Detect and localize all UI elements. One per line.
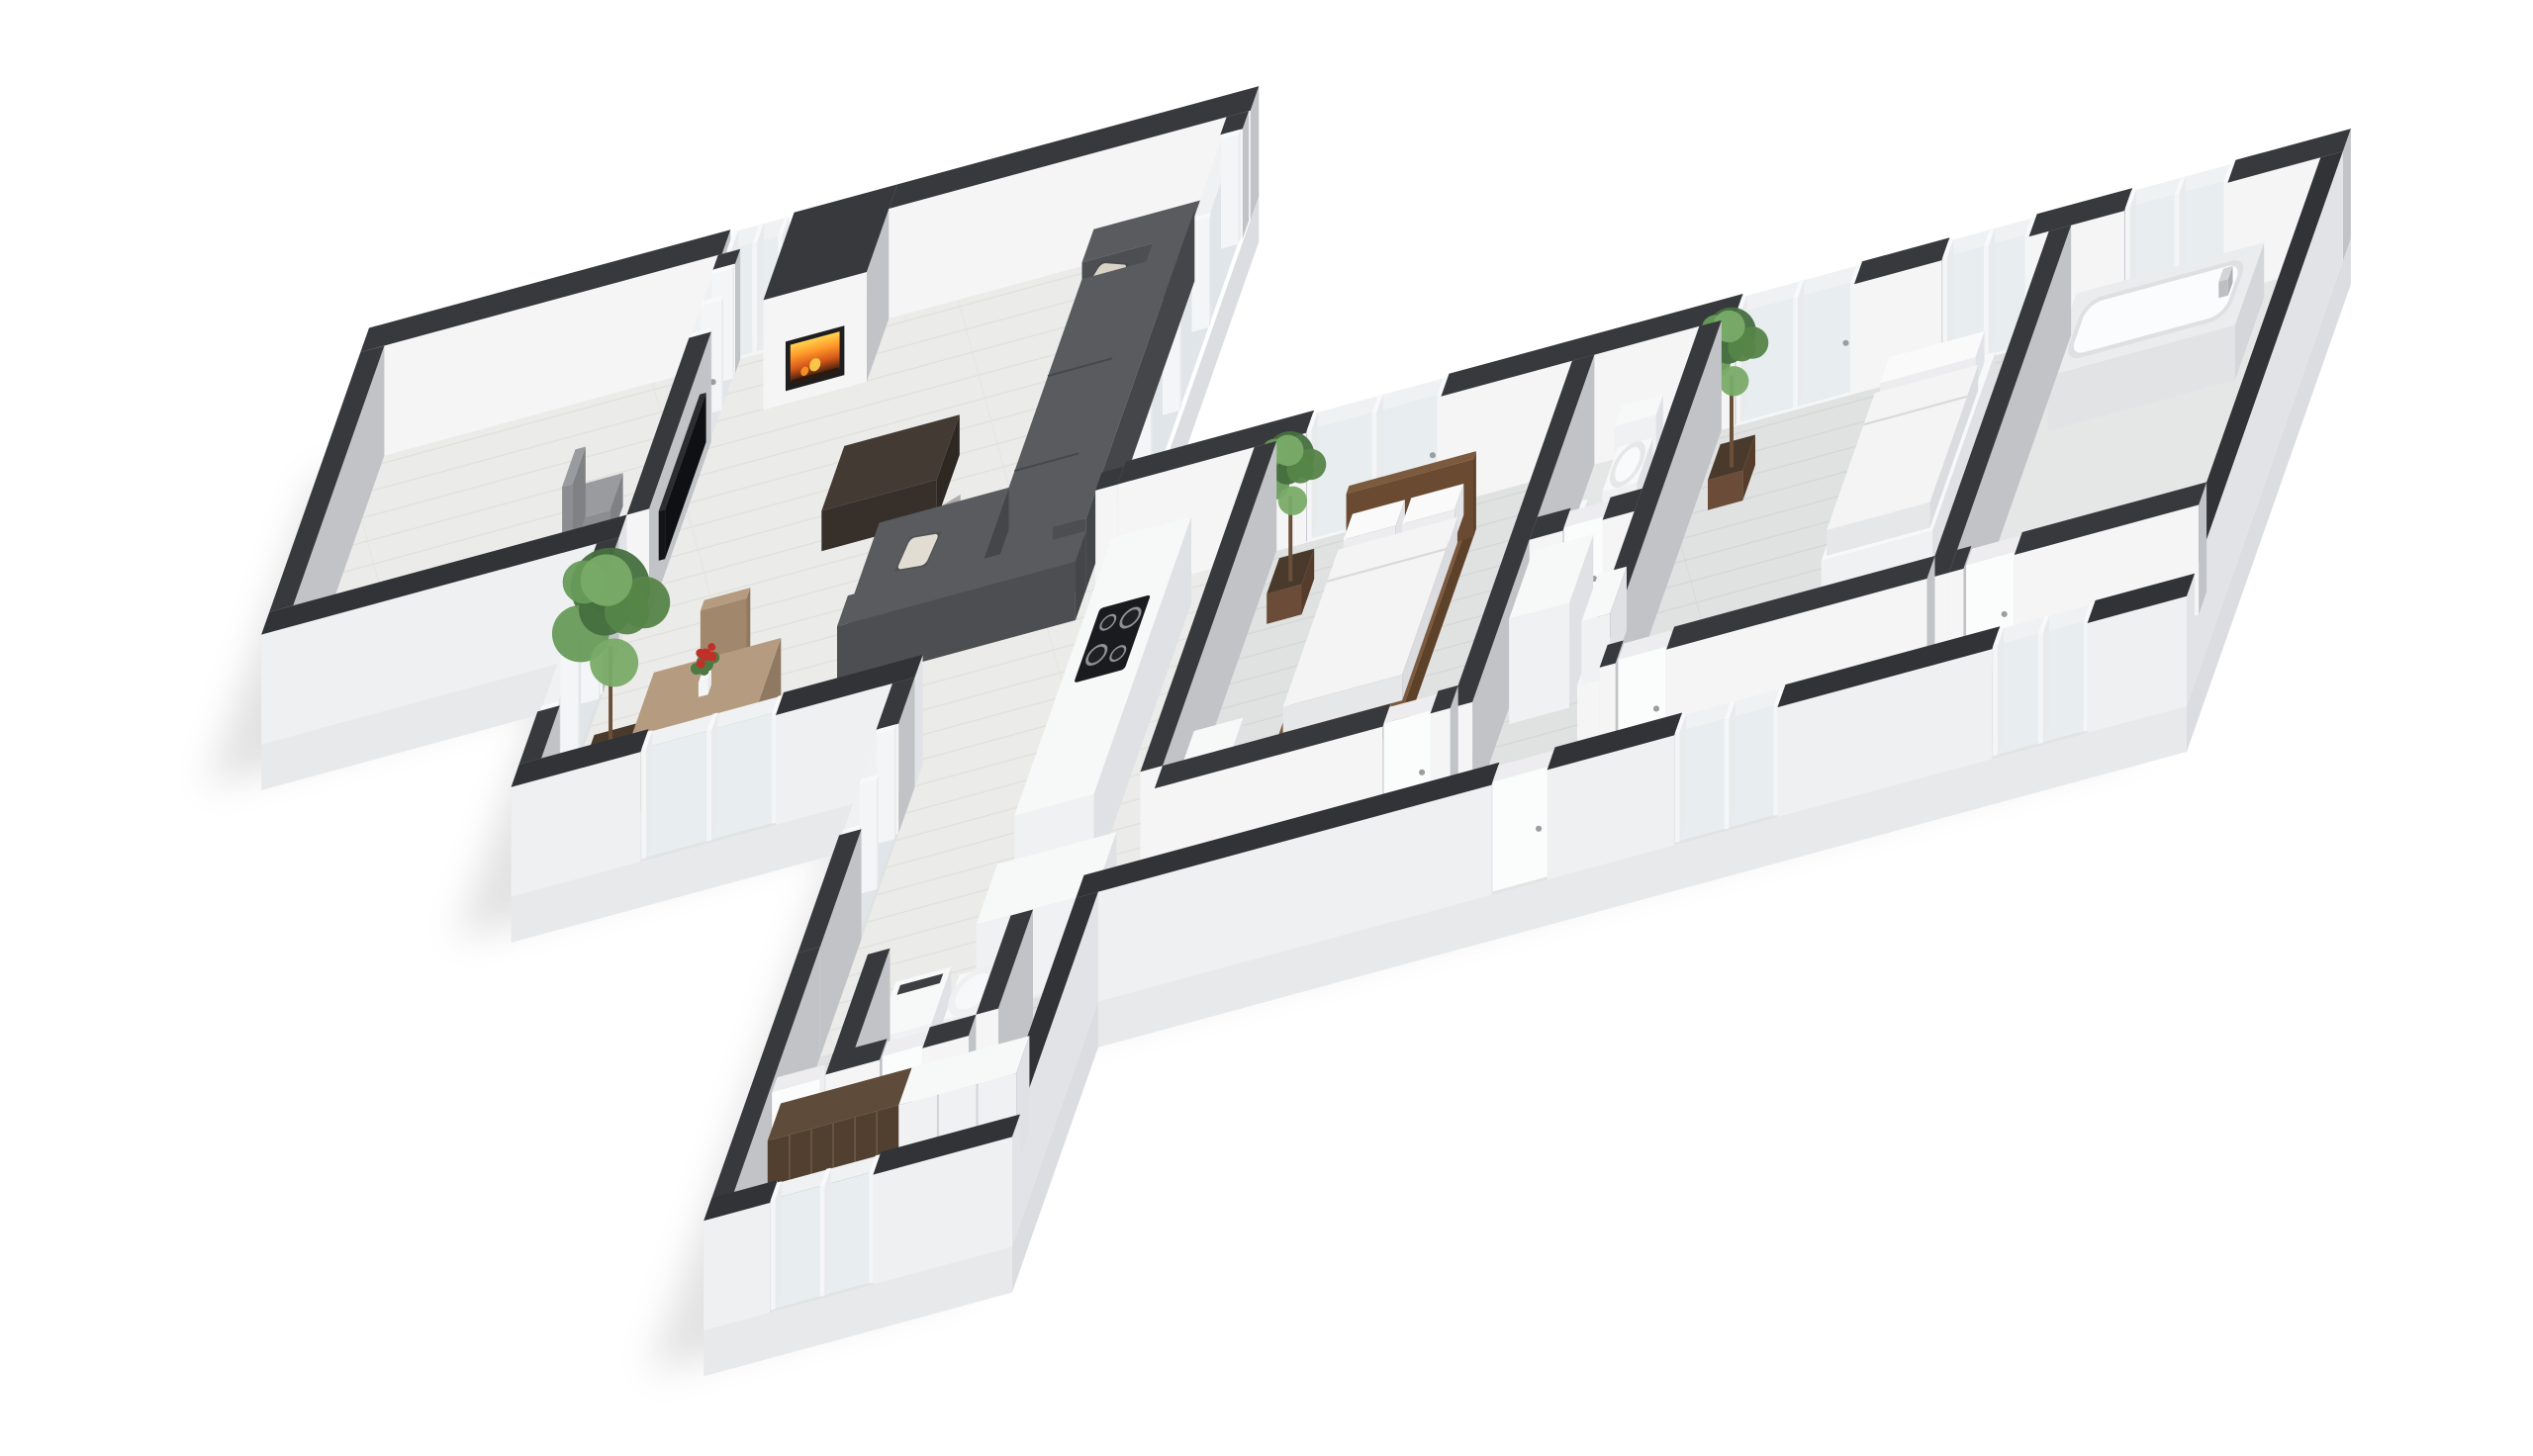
wall-south-block-b-east — [1012, 1115, 1020, 1247]
window-second-bedroom-north-post-east — [1989, 227, 1995, 355]
window-living-east-post-east — [1239, 130, 1241, 244]
window-second-bedroom-north-post-south — [1984, 245, 1989, 356]
floorplan-3d-render — [40, 16, 2533, 1440]
bed-master-headboard-east — [1473, 451, 1476, 537]
window-hall-south-b-post-east — [2043, 615, 2049, 743]
window-kitchen-west-post-south — [859, 779, 877, 894]
master-bedroom-plant-foliage — [1278, 487, 1307, 515]
window-kitchen-west-post-south — [877, 729, 894, 844]
window-south-bedroom-post-east — [824, 1168, 830, 1296]
window-living-south-post-south — [641, 748, 646, 859]
master-bedroom-plant-foliage — [1272, 435, 1303, 466]
window-south-bedroom-post-south — [771, 1199, 776, 1310]
wall-bath-south-b-east — [2199, 482, 2206, 614]
window-hall-south-b-post-south — [1993, 645, 1998, 756]
window-living-east-post-south — [1221, 135, 1239, 249]
wall-south-wing-d-east — [2187, 574, 2195, 706]
door-bathroom-handle-icon — [2002, 611, 2008, 617]
wall-office-divider-a-east — [735, 249, 740, 374]
window-kitchen-west-post-east — [894, 724, 896, 839]
hall-cabinet-tall-south — [1509, 602, 1569, 724]
glass-door-second-bedroom-north-handle-icon — [1842, 340, 1848, 346]
glass-door-office-east-stile-east — [721, 296, 723, 410]
glass-door-office-north-stile-south — [752, 242, 757, 353]
wall-tv-south — [659, 509, 665, 561]
dining-flowers-blooms — [707, 643, 715, 651]
wall-south-living-b-east — [915, 655, 923, 787]
glass-door-second-bedroom-north-stile-east — [1798, 280, 1804, 408]
dining-flowers-blooms — [707, 652, 717, 662]
dining-flowers-blooms — [696, 649, 704, 658]
glass-door-office-east-stile-east — [733, 264, 735, 379]
living-room-tree-foliage — [581, 554, 632, 605]
door-back-entry-handle-icon — [1536, 826, 1542, 832]
bathtub-faucet-south — [2218, 279, 2228, 298]
wall-north-wing-e-east — [2343, 129, 2351, 261]
wall-living-east-frame-a-east — [1243, 111, 1249, 238]
window-living-south-post-south — [706, 731, 711, 842]
second-bedroom-plant-foliage — [1719, 366, 1748, 396]
door-second-bedroom-handle-icon — [1653, 705, 1659, 711]
living-room-tree-foliage — [590, 638, 638, 686]
wall-south-block-a — [704, 1180, 778, 1330]
window-hall-south-a-post-south — [1725, 718, 1730, 829]
window-living-south-post-east — [711, 712, 717, 840]
window-hall-south-a-post-south — [1675, 732, 1680, 843]
window-living-east-post-east — [1209, 213, 1211, 327]
door-back-entry — [1493, 751, 1554, 892]
window-kitchen-west-post-east — [877, 774, 879, 889]
wall-south-block-a-south — [704, 1203, 770, 1330]
glass-door-office-north-stile-east — [757, 223, 764, 352]
window-hall-south-b-post-south — [2038, 633, 2043, 744]
dining-flowers-blooms — [697, 660, 705, 669]
glass-door-master-north-handle-icon — [1430, 452, 1436, 458]
window-living-south-post-east — [646, 730, 652, 858]
door-master-bedroom-handle-icon — [1419, 770, 1425, 775]
window-hall-south-b-post-east — [1998, 627, 2004, 755]
floorplan-svg — [40, 16, 2533, 1440]
glass-door-second-bedroom-north-stile-south — [1793, 298, 1798, 409]
window-living-west-post-south — [561, 648, 579, 763]
window-south-bedroom-post-south — [820, 1186, 825, 1297]
window-south-bedroom-post-east — [776, 1181, 782, 1309]
window-hall-south-a-post-east — [1730, 700, 1736, 828]
dining-flowers-vase-south — [699, 680, 708, 696]
window-hall-south-a-post-east — [1680, 714, 1686, 842]
